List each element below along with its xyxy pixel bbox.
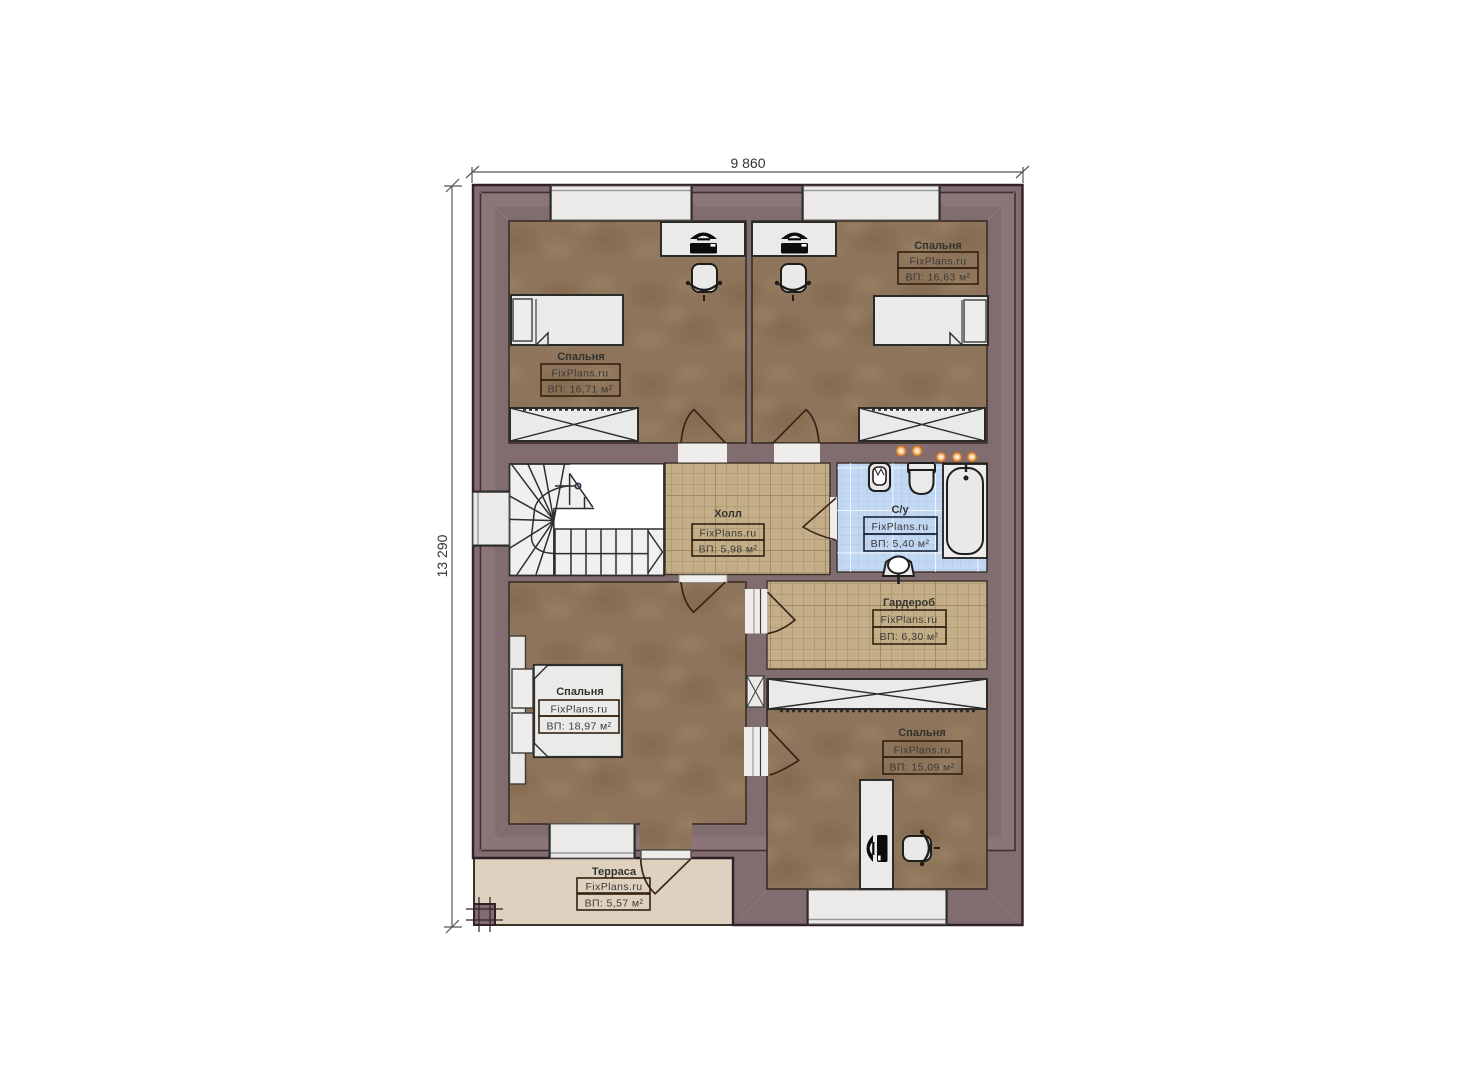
svg-text:FixPlans.ru: FixPlans.ru bbox=[894, 745, 951, 757]
svg-text:Гардероб: Гардероб bbox=[883, 597, 935, 609]
svg-text:FixPlans.ru: FixPlans.ru bbox=[881, 614, 938, 626]
svg-text:13 290: 13 290 bbox=[434, 534, 450, 577]
svg-text:ВП: 16,63 м²: ВП: 16,63 м² bbox=[905, 272, 970, 284]
svg-text:ВП: 16,71 м²: ВП: 16,71 м² bbox=[547, 384, 612, 396]
svg-text:ВП: 5,40 м²: ВП: 5,40 м² bbox=[871, 538, 930, 550]
svg-text:ВП: 6,30 м²: ВП: 6,30 м² bbox=[880, 631, 939, 643]
svg-text:FixPlans.ru: FixPlans.ru bbox=[551, 704, 608, 716]
svg-text:Спальня: Спальня bbox=[898, 727, 946, 739]
svg-text:ВП: 18,97 м²: ВП: 18,97 м² bbox=[546, 721, 611, 733]
svg-text:FixPlans.ru: FixPlans.ru bbox=[700, 528, 757, 540]
svg-text:Холл: Холл bbox=[714, 508, 742, 520]
svg-text:ВП: 5,57 м²: ВП: 5,57 м² bbox=[585, 898, 644, 910]
svg-text:FixPlans.ru: FixPlans.ru bbox=[552, 368, 609, 380]
svg-text:ВП: 15,09 м²: ВП: 15,09 м² bbox=[889, 762, 954, 774]
svg-text:Спальня: Спальня bbox=[556, 686, 604, 698]
svg-text:ВП: 5,98 м²: ВП: 5,98 м² bbox=[699, 544, 758, 556]
svg-text:FixPlans.ru: FixPlans.ru bbox=[872, 521, 929, 533]
svg-text:FixPlans.ru: FixPlans.ru bbox=[586, 881, 643, 893]
svg-text:Спальня: Спальня bbox=[914, 240, 962, 252]
svg-text:С/у: С/у bbox=[891, 504, 909, 516]
svg-text:Спальня: Спальня bbox=[557, 351, 605, 363]
svg-text:9 860: 9 860 bbox=[730, 155, 765, 171]
svg-text:FixPlans.ru: FixPlans.ru bbox=[910, 256, 967, 268]
svg-text:Терраса: Терраса bbox=[592, 866, 637, 878]
